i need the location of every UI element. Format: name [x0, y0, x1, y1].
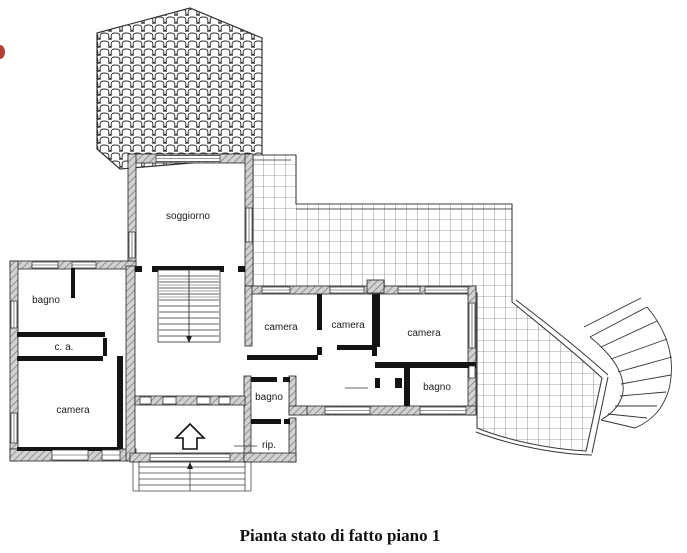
- room-label-bagno-nordovest: bagno: [32, 295, 60, 306]
- plan-title: Pianta stato di fatto piano 1: [240, 526, 441, 545]
- room-label-camera-ovest: camera: [56, 405, 90, 416]
- internal-staircase: [158, 270, 220, 343]
- room-label-camera-est: camera: [407, 328, 441, 339]
- red-edge-mark: [0, 45, 5, 59]
- floor-plan-page: soggiornobagnoc. a.cameracameracameracam…: [0, 0, 687, 553]
- curved-external-stair: [584, 298, 672, 428]
- room-label-soggiorno: soggiorno: [166, 211, 210, 222]
- chimney-block: [367, 280, 384, 293]
- entrance-arrow-icon: [176, 424, 204, 449]
- entrance-steps: [133, 461, 251, 491]
- room-label-bagno-sudest: bagno: [423, 382, 451, 393]
- label-leader-lines: [234, 388, 368, 446]
- floor-plan-drawing: soggiornobagnoc. a.cameracameracameracam…: [0, 0, 687, 553]
- roof: [97, 8, 262, 169]
- room-label-cabina-armadio: c. a.: [55, 342, 74, 353]
- room-label-camera-centro-1: camera: [264, 322, 298, 333]
- room-label-bagno-sud: bagno: [255, 392, 283, 403]
- room-label-ripostiglio: rip.: [262, 440, 276, 451]
- steps-direction-arrow: [187, 462, 193, 469]
- room-label-camera-centro-2: camera: [331, 320, 365, 331]
